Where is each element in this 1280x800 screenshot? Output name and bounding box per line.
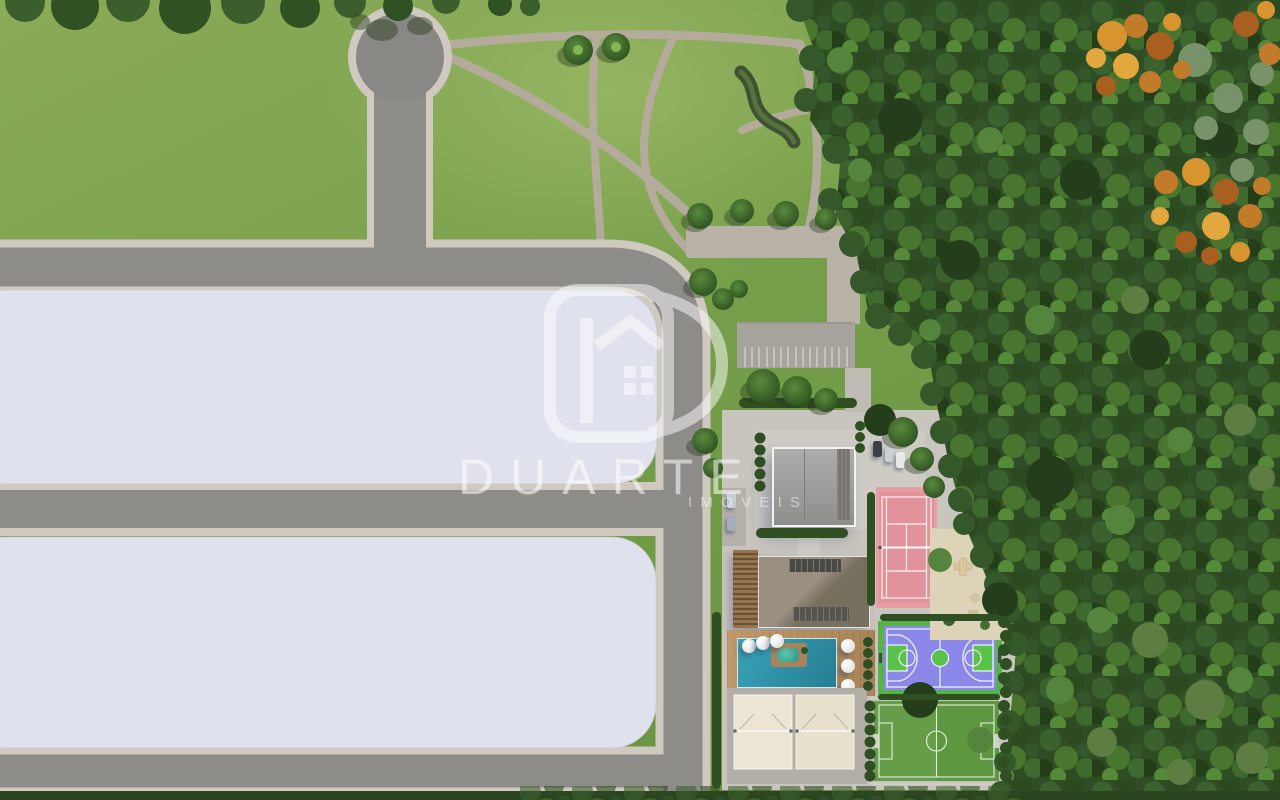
- palm-tree-center: [573, 45, 583, 55]
- palm-tree-center: [611, 42, 621, 52]
- top-edge-canopy: [5, 0, 540, 34]
- aerial-site-plan: DUARTE IMÓVEIS: [0, 0, 1280, 800]
- forest: [786, 0, 1280, 800]
- trees: [5, 0, 945, 498]
- vegetation-layer: [0, 0, 1280, 800]
